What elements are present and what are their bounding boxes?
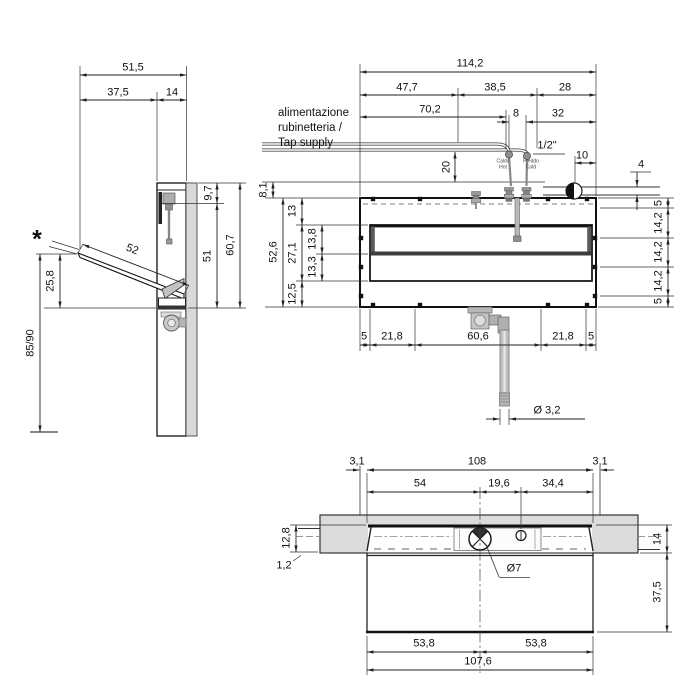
- dim-plan-p-left: 54: [414, 479, 426, 490]
- dim-front-d-right: 32: [552, 109, 564, 120]
- technical-drawing-canvas: 51,5 37,5 14 52 25,8 85/90 9,7 51 60,7 *…: [0, 0, 700, 700]
- label-cold-en: Cold: [526, 166, 536, 171]
- dim-plan-hole-dia: Ø7: [507, 564, 522, 575]
- dim-front-supply-offset: 70,2: [419, 105, 440, 116]
- dim-front-fix-r2: 14,2: [654, 212, 665, 233]
- dim-front-h-basin: 27,1: [288, 242, 299, 263]
- dim-front-tap-spacing: 8: [513, 109, 519, 120]
- supply-note-line3: Tap supply: [278, 138, 333, 150]
- dim-front-fix-b4: 21,8: [552, 332, 573, 343]
- dim-waste-pipe-dia: Ø 3,2: [534, 406, 561, 417]
- dim-plan-half-left: 53,8: [413, 639, 434, 650]
- dim-front-drain-offset: 10: [576, 151, 588, 162]
- dim-plan-gap-left: 3,1: [349, 457, 364, 468]
- dim-front-width-total: 114,2: [457, 59, 484, 70]
- dim-front-h-basin-upper: 13,8: [308, 228, 319, 249]
- dim-front-w-mid: 38,5: [484, 83, 505, 94]
- dim-plan-wall-depth: 14: [653, 533, 664, 545]
- dim-front-height-total: 52,6: [269, 241, 280, 262]
- dim-plan-p-right: 34,4: [542, 479, 563, 490]
- supply-note-line2: rubinetteria /: [278, 123, 342, 135]
- dim-front-h-basin-lower: 13,3: [308, 256, 319, 277]
- dim-front-fix-b3: 60,6: [467, 332, 488, 343]
- dim-plan-lip-depth: 12,8: [282, 527, 293, 548]
- dim-front-top-gap: 8,1: [259, 182, 270, 197]
- dim-plan-width-outer: 107,6: [464, 657, 492, 668]
- dim-plan-gap-right: 3,1: [592, 457, 607, 468]
- waste-pipe: [500, 330, 510, 406]
- dim-front-fix-r3: 14,2: [654, 241, 665, 262]
- cold-supply-pipe: [262, 150, 528, 156]
- dim-front-fix-r5: 5: [654, 298, 665, 304]
- dim-front-h-top: 13: [288, 205, 299, 217]
- dim-front-w-left: 47,7: [396, 83, 417, 94]
- dim-side-height-total: 60,7: [226, 234, 237, 255]
- dim-front-fix-b2: 21,8: [381, 332, 402, 343]
- dim-front-fix-b1: 5: [361, 332, 367, 343]
- dim-front-fix-r1: 5: [654, 200, 665, 206]
- dim-front-fix-r4: 14,2: [654, 270, 665, 291]
- supply-note-line1: alimentazione: [278, 108, 349, 120]
- dim-front-drain-pipe: 4: [638, 160, 644, 171]
- dim-side-width-total: 51,5: [122, 63, 143, 74]
- dim-plan-p-mid: 19,6: [488, 479, 509, 490]
- plan-view-linework: [290, 466, 672, 675]
- dim-front-fix-b5: 5: [588, 332, 594, 343]
- dim-plan-width-inner: 108: [468, 457, 486, 468]
- drawing-linework: [0, 0, 700, 700]
- dim-side-mount-height: 85/90: [26, 329, 37, 357]
- dim-side-front-height: 51: [203, 250, 214, 262]
- label-hot-en: Hot: [499, 166, 507, 171]
- dim-plan-half-right: 53,8: [525, 639, 546, 650]
- note-marker: *: [32, 228, 42, 253]
- dim-front-h-bottom: 12,5: [288, 283, 299, 304]
- dim-side-top-inset: 9,7: [204, 185, 215, 200]
- side-tap-body: [163, 193, 175, 204]
- dim-side-depth: 14: [166, 88, 178, 99]
- dim-plan-lip-edge: 1,2: [276, 561, 291, 572]
- dim-front-supply-rise: 20: [442, 161, 453, 173]
- label-tap-thread: 1/2": [537, 141, 556, 152]
- dim-front-w-right: 28: [559, 83, 571, 94]
- dim-side-width-flap: 37,5: [107, 88, 128, 99]
- drain-trap: [468, 307, 509, 333]
- dim-side-flap-drop: 25,8: [46, 270, 57, 291]
- faucet-stem: [515, 198, 520, 238]
- dim-plan-bowl-depth: 37,5: [653, 581, 664, 602]
- side-wall-panel: [186, 183, 197, 436]
